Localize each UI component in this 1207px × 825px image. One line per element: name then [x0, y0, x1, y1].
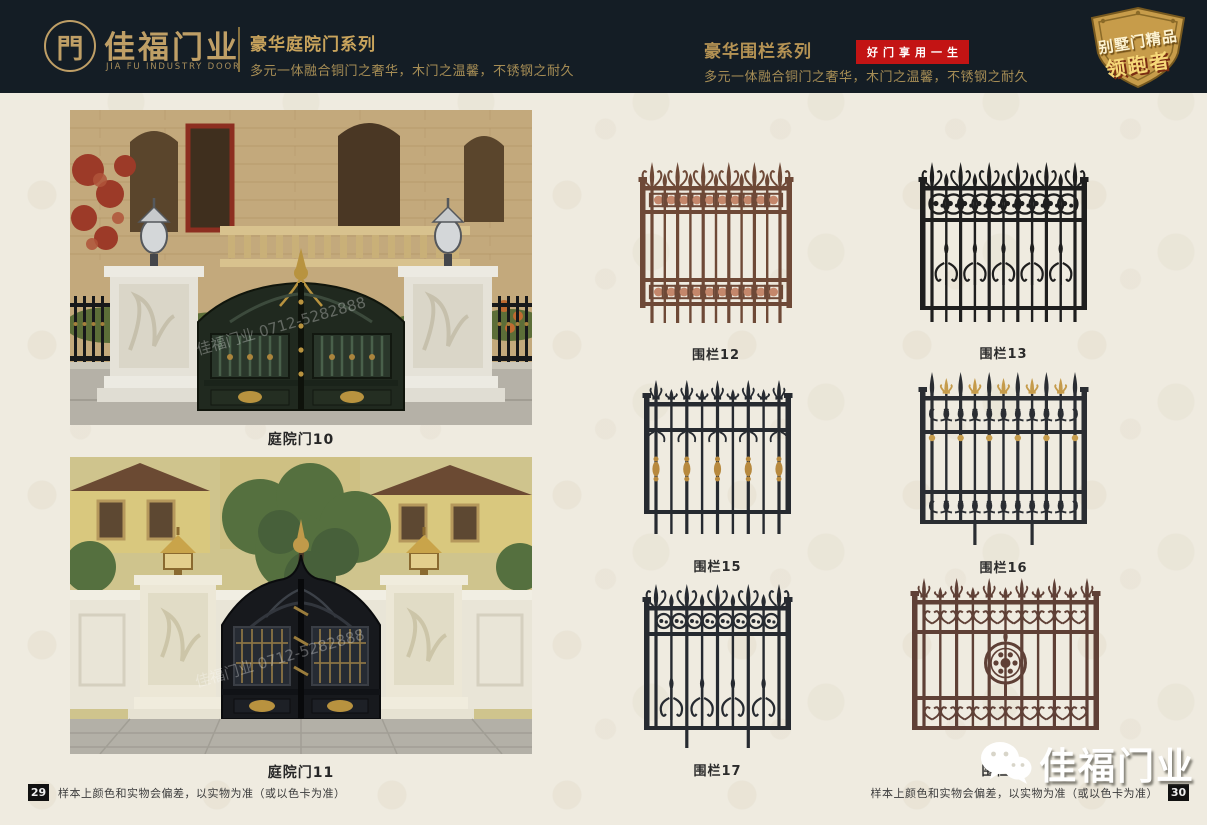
left-page-footer: 29 样本上颜色和实物会偏差，以实物为准（或以色卡为准）: [28, 784, 346, 801]
fence-series-subtitle: 多元一体融合铜门之奢华，木门之温馨，不锈钢之耐久: [704, 66, 1028, 85]
quality-badge: 好门享用一生: [856, 40, 969, 64]
fence-12-caption: 围栏12: [692, 344, 740, 363]
wechat-icon: [980, 740, 1034, 786]
fence-17-illustration: [640, 576, 795, 755]
gate-photo-11-caption: 庭院门11: [70, 762, 532, 782]
fence-15-illustration: [640, 372, 795, 551]
fence-figure-15: 围栏15: [640, 372, 795, 575]
gate-photo-11: 佳福门业 0712-5282888: [70, 457, 532, 754]
premium-shield-badge: 别墅门精品 领跑者: [1078, 5, 1198, 91]
brand-name: 佳福门业: [104, 22, 240, 67]
gate-photo-10: 佳福门业 0712-5282888: [70, 110, 532, 425]
fence-figure-17: 围栏17: [640, 576, 795, 779]
catalog-spread: 門 佳福门业 JIA FU INDUSTRY DOOR 豪华庭院门系列 多元一体…: [0, 0, 1207, 825]
door-logo-icon: 門: [44, 20, 96, 72]
fence-figure-13: 围栏13: [916, 156, 1091, 362]
brand-watermark: 佳福门业: [980, 736, 1195, 790]
logo-glyph: 門: [57, 27, 84, 66]
header-bar: 門 佳福门业 JIA FU INDUSTRY DOOR 豪华庭院门系列 多元一体…: [0, 0, 1207, 93]
fence-13-caption: 围栏13: [979, 343, 1027, 362]
door-series-title: 豪华庭院门系列: [250, 30, 376, 55]
fence-13-illustration: [916, 156, 1091, 338]
fence-figure-12: 围栏12: [636, 160, 796, 363]
fence-16-caption: 围栏16: [979, 557, 1027, 576]
fence-16-illustration: [916, 370, 1091, 552]
gate-photo-10-caption: 庭院门10: [70, 429, 532, 449]
brand-watermark-text: 佳福门业: [1039, 736, 1195, 790]
gate-photo-11-illustration: 佳福门业 0712-5282888: [70, 457, 532, 754]
page-number-left: 29: [28, 784, 49, 801]
header-divider: [238, 27, 240, 72]
brand-name-en: JIA FU INDUSTRY DOOR: [106, 62, 241, 72]
fence-15-caption: 围栏15: [693, 556, 741, 575]
fence-18-illustration: [908, 576, 1103, 755]
door-series-subtitle: 多元一体融合铜门之奢华，木门之温馨，不锈钢之耐久: [250, 60, 574, 79]
fence-series-title: 豪华围栏系列: [704, 37, 812, 62]
fence-figure-16: 围栏16: [916, 370, 1091, 576]
fence-17-caption: 围栏17: [693, 760, 741, 779]
fence-12-illustration: [636, 160, 796, 339]
disclaimer-left: 样本上颜色和实物会偏差，以实物为准（或以色卡为准）: [58, 785, 346, 801]
gate-photo-10-illustration: 佳福门业 0712-5282888: [70, 110, 532, 425]
